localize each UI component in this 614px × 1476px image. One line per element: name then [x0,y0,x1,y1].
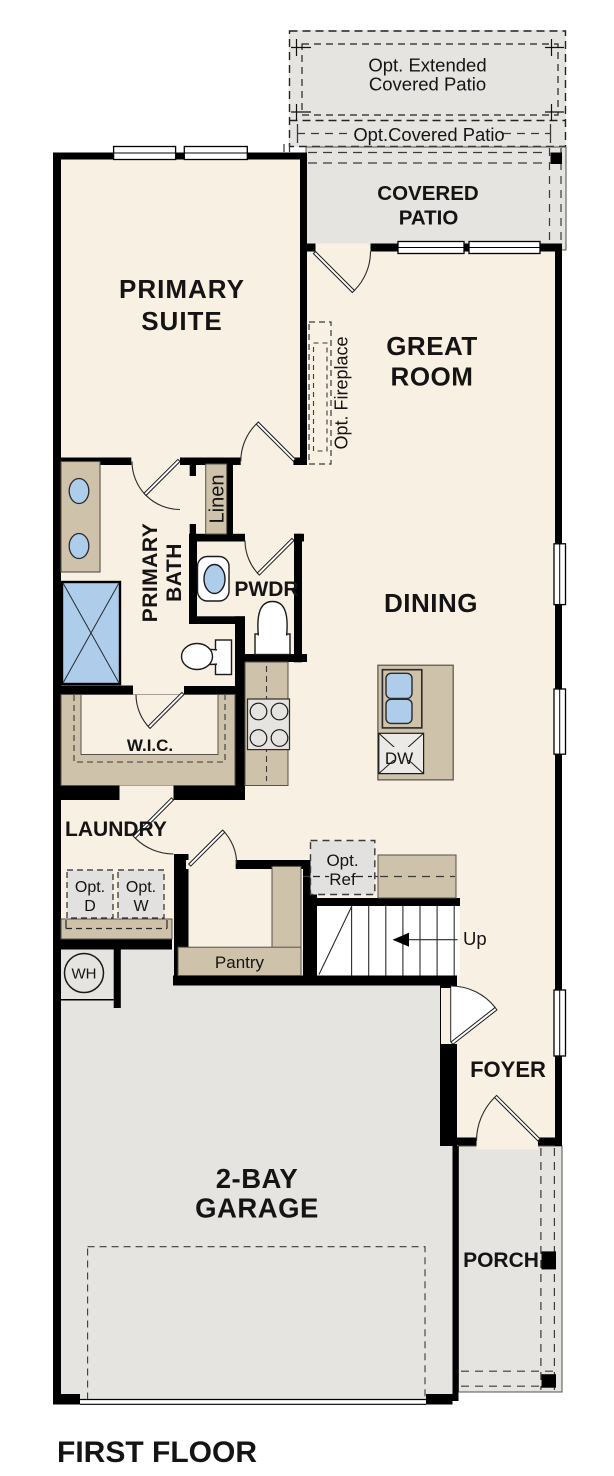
svg-text:D: D [84,898,96,915]
svg-text:DINING: DINING [384,588,478,618]
svg-text:Opt.: Opt. [126,879,156,896]
svg-text:PORCH: PORCH [463,1249,539,1272]
svg-text:SUITE: SUITE [141,306,223,336]
svg-text:Opt.: Opt. [326,851,358,870]
svg-text:COVERED: COVERED [377,182,478,205]
svg-text:FIRST FLOOR: FIRST FLOOR [57,1436,257,1469]
svg-text:W.I.C.: W.I.C. [127,736,173,755]
svg-text:Opt.Covered Patio: Opt.Covered Patio [353,124,504,145]
svg-text:Ref: Ref [329,870,356,889]
svg-text:FOYER: FOYER [470,1057,546,1082]
svg-text:LAUNDRY: LAUNDRY [65,818,167,841]
svg-text:PATIO: PATIO [399,207,459,230]
svg-text:Covered Patio: Covered Patio [369,74,486,95]
svg-text:GREAT: GREAT [386,331,478,361]
svg-text:Opt.: Opt. [75,879,105,896]
svg-text:PRIMARY: PRIMARY [119,274,245,304]
svg-text:Opt. Fireplace: Opt. Fireplace [332,336,352,449]
svg-text:WH: WH [72,966,97,983]
svg-text:2-BAY: 2-BAY [216,1163,299,1194]
svg-text:Opt. Extended: Opt. Extended [368,55,486,76]
svg-text:Up: Up [463,928,487,949]
svg-text:Linen: Linen [207,475,229,524]
svg-text:GARAGE: GARAGE [195,1193,319,1224]
svg-text:ROOM: ROOM [391,362,474,392]
svg-text:Pantry: Pantry [215,953,265,972]
svg-text:W: W [133,898,149,915]
svg-text:DW: DW [385,749,413,768]
svg-text:PRIMARY: PRIMARY [139,523,162,623]
svg-text:BATH: BATH [163,543,186,602]
svg-text:PWDR: PWDR [234,578,298,601]
